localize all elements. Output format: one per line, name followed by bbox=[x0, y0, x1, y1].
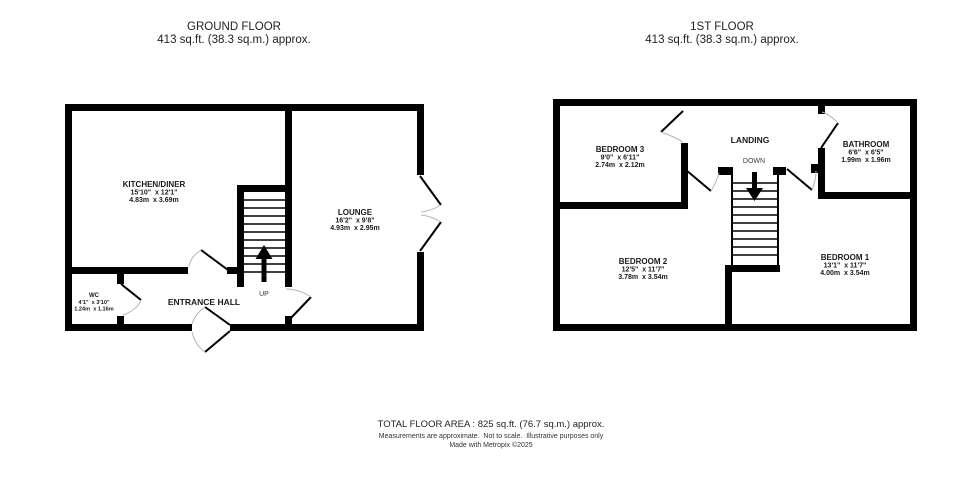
door-swing-arc bbox=[421, 205, 441, 212]
first-floor-staircase: DOWN bbox=[731, 158, 779, 265]
ground-floor-title: GROUND FLOOR bbox=[187, 21, 281, 33]
room-name: BEDROOM 2 bbox=[619, 257, 668, 266]
wall bbox=[725, 265, 780, 272]
room-name: LOUNGE bbox=[338, 208, 373, 217]
room-imperial-dims: 13'1" x 11'7" bbox=[824, 263, 867, 270]
door-leaf bbox=[787, 169, 812, 190]
door-swing-arc bbox=[812, 171, 816, 190]
wall bbox=[553, 99, 560, 331]
wall bbox=[811, 164, 818, 173]
door-swing-arc bbox=[421, 215, 441, 222]
wall bbox=[725, 272, 732, 324]
room-label-bathroom: BATHROOM 6'6" x 6'5" 1.99m x 1.96m bbox=[841, 140, 890, 164]
wall bbox=[117, 316, 124, 331]
room-imperial-dims: 6'6" x 6'5" bbox=[848, 150, 883, 157]
door-swing-arc bbox=[192, 307, 205, 324]
wall bbox=[417, 252, 424, 331]
wall bbox=[818, 192, 910, 199]
door-swing-arc bbox=[189, 250, 201, 266]
door-leaf bbox=[205, 331, 230, 352]
room-metric-dims: 4.83m x 3.69m bbox=[129, 197, 178, 204]
door-leaf bbox=[121, 284, 141, 300]
door-leaf bbox=[289, 297, 311, 320]
footer: TOTAL FLOOR AREA : 825 sq.ft. (76.7 sq.m… bbox=[378, 419, 605, 449]
room-imperial-dims: 9'0" x 6'11" bbox=[601, 155, 640, 162]
ground-floor-area: 413 sq.ft. (38.3 sq.m.) approx. bbox=[157, 34, 310, 46]
door-leaf bbox=[201, 250, 228, 270]
wall bbox=[773, 167, 786, 175]
door-swing-arc bbox=[192, 332, 205, 352]
wall bbox=[117, 274, 124, 284]
down-arrow-shaft bbox=[752, 172, 757, 189]
door-leaf bbox=[821, 123, 838, 148]
wall bbox=[65, 104, 424, 111]
room-metric-dims: 1.99m x 1.96m bbox=[841, 157, 890, 164]
door-swing-arc bbox=[286, 289, 311, 297]
disclaimer-text: Measurements are approximate. Not to sca… bbox=[379, 433, 604, 440]
door-leaf bbox=[420, 222, 441, 251]
door-swing-arc bbox=[661, 132, 683, 142]
wall bbox=[65, 267, 188, 274]
room-label-bedroom-3: BEDROOM 3 9'0" x 6'11" 2.74m x 2.12m bbox=[595, 145, 644, 169]
wall bbox=[230, 324, 424, 331]
floorplan-drawing: GROUND FLOOR 413 sq.ft. (38.3 sq.m.) app… bbox=[0, 0, 980, 477]
room-metric-dims: 4.93m x 2.95m bbox=[330, 225, 379, 232]
room-metric-dims: 4.00m x 3.54m bbox=[820, 270, 869, 277]
total-floor-area-text: TOTAL FLOOR AREA : 825 sq.ft. (76.7 sq.m… bbox=[378, 419, 605, 430]
room-name: BEDROOM 1 bbox=[821, 253, 870, 262]
credit-text: Made with Metropix ©2025 bbox=[449, 441, 532, 449]
room-imperial-dims: 15'10" x 12'1" bbox=[131, 190, 178, 197]
wall bbox=[227, 267, 243, 274]
floorplan-page: GROUND FLOOR 413 sq.ft. (38.3 sq.m.) app… bbox=[0, 0, 980, 477]
up-arrow-head bbox=[256, 245, 273, 259]
up-arrow-shaft bbox=[262, 258, 267, 282]
stair-direction-label: UP bbox=[259, 291, 269, 298]
door-leaf bbox=[661, 111, 683, 132]
room-label-lounge: LOUNGE 16'2" x 9'8" 4.93m x 2.95m bbox=[330, 208, 379, 232]
wall bbox=[553, 202, 688, 209]
room-label-wc: WC 4'1" x 3'10" 1.24m x 1.16m bbox=[74, 293, 114, 313]
stair-rail bbox=[777, 175, 779, 265]
door-leaf bbox=[420, 176, 441, 205]
room-name: WC bbox=[89, 293, 100, 299]
wall bbox=[553, 324, 917, 331]
room-imperial-dims: 12'5" x 11'7" bbox=[622, 267, 665, 274]
room-name: KITCHEN/DINER bbox=[123, 180, 186, 189]
door-leaf bbox=[686, 170, 711, 191]
room-name: BEDROOM 3 bbox=[596, 145, 645, 154]
room-label-bedroom-1: BEDROOM 1 13'1" x 11'7" 4.00m x 3.54m bbox=[820, 253, 869, 277]
stair-direction-label: DOWN bbox=[743, 158, 765, 165]
room-label-landing: LANDING bbox=[731, 135, 770, 145]
wall bbox=[553, 99, 917, 106]
first-floor-plan: 1ST FLOOR 413 sq.ft. (38.3 sq.m.) approx… bbox=[553, 21, 917, 331]
wall bbox=[417, 104, 424, 175]
first-floor-area: 413 sq.ft. (38.3 sq.m.) approx. bbox=[645, 34, 798, 46]
room-imperial-dims: 16'2" x 9'8" bbox=[335, 218, 374, 225]
first-floor-title: 1ST FLOOR bbox=[690, 21, 754, 33]
room-label-entrance-hall: ENTRANCE HALL bbox=[168, 297, 240, 307]
room-label-bedroom-2: BEDROOM 2 12'5" x 11'7" 3.78m x 3.54m bbox=[618, 257, 667, 281]
wall bbox=[818, 148, 825, 198]
wall bbox=[910, 99, 917, 331]
door-leaf bbox=[205, 307, 230, 325]
ground-floor-plan: GROUND FLOOR 413 sq.ft. (38.3 sq.m.) app… bbox=[65, 21, 441, 352]
room-imperial-dims: 4'1" x 3'10" bbox=[78, 300, 110, 306]
wall bbox=[237, 185, 292, 192]
door-swing-arc bbox=[123, 300, 141, 315]
wall bbox=[681, 143, 688, 209]
wall bbox=[65, 104, 72, 331]
room-metric-dims: 3.78m x 3.54m bbox=[618, 274, 667, 281]
wall bbox=[718, 167, 733, 175]
room-metric-dims: 2.74m x 2.12m bbox=[595, 162, 644, 169]
room-metric-dims: 1.24m x 1.16m bbox=[74, 307, 114, 313]
wall bbox=[285, 104, 292, 287]
ground-floor-staircase: UP bbox=[244, 200, 285, 298]
stair-rail bbox=[731, 175, 733, 265]
room-label-kitchen-diner: KITCHEN/DINER 15'10" x 12'1" 4.83m x 3.6… bbox=[123, 180, 186, 204]
room-name: BATHROOM bbox=[843, 140, 890, 149]
door-swing-arc bbox=[711, 173, 719, 191]
wall bbox=[65, 324, 192, 331]
